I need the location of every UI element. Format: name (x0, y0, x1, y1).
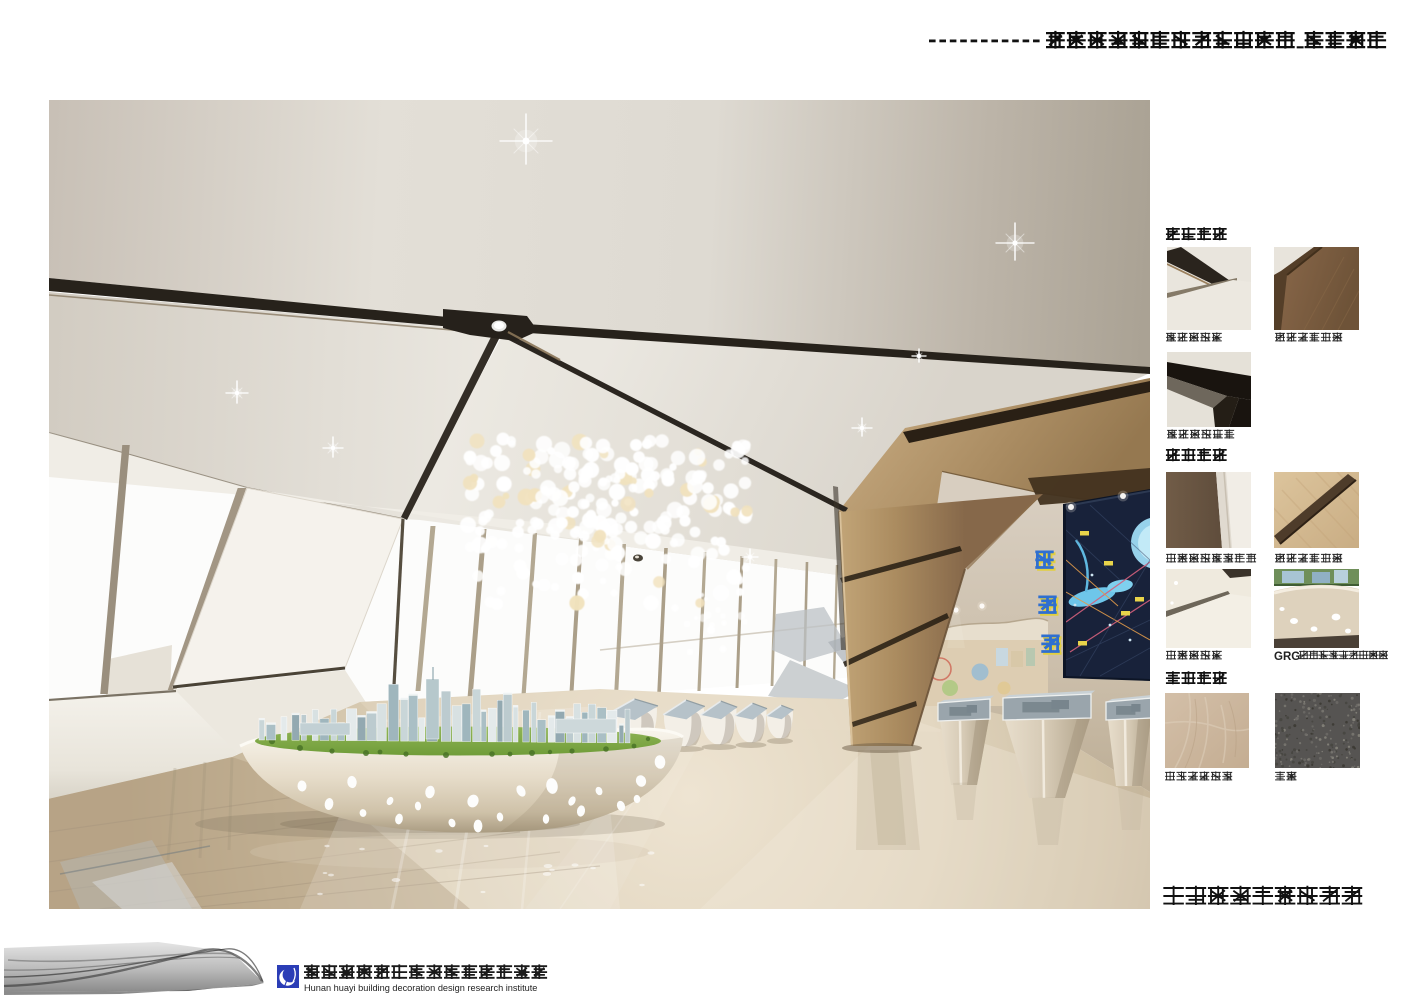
svg-text:Hunan huayi building decoratio: Hunan huayi building decoration design r… (304, 983, 537, 993)
svg-text:GRG: GRG (1274, 651, 1300, 663)
